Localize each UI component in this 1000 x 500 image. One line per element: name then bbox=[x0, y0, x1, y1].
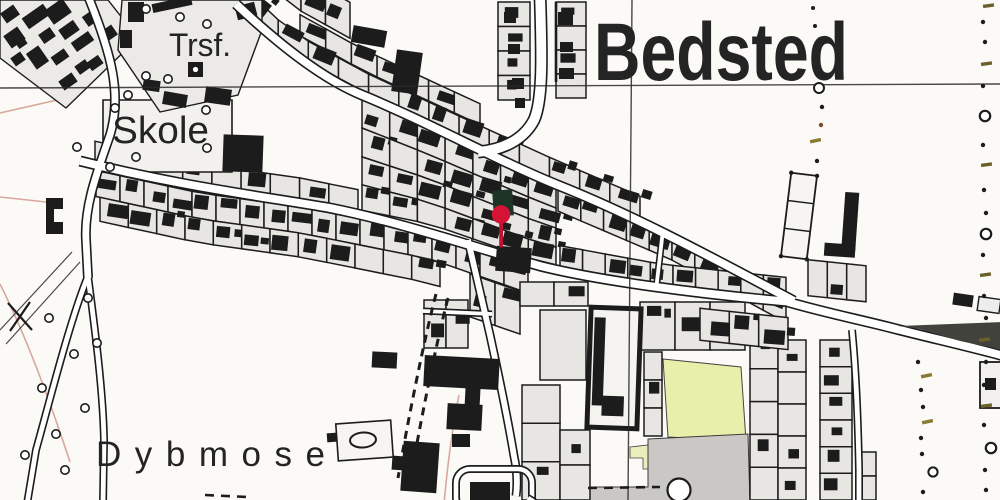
svg-text:Bedsted: Bedsted bbox=[594, 7, 848, 98]
svg-text:Trsf.: Trsf. bbox=[169, 27, 231, 63]
svg-text:Skole: Skole bbox=[112, 110, 209, 152]
